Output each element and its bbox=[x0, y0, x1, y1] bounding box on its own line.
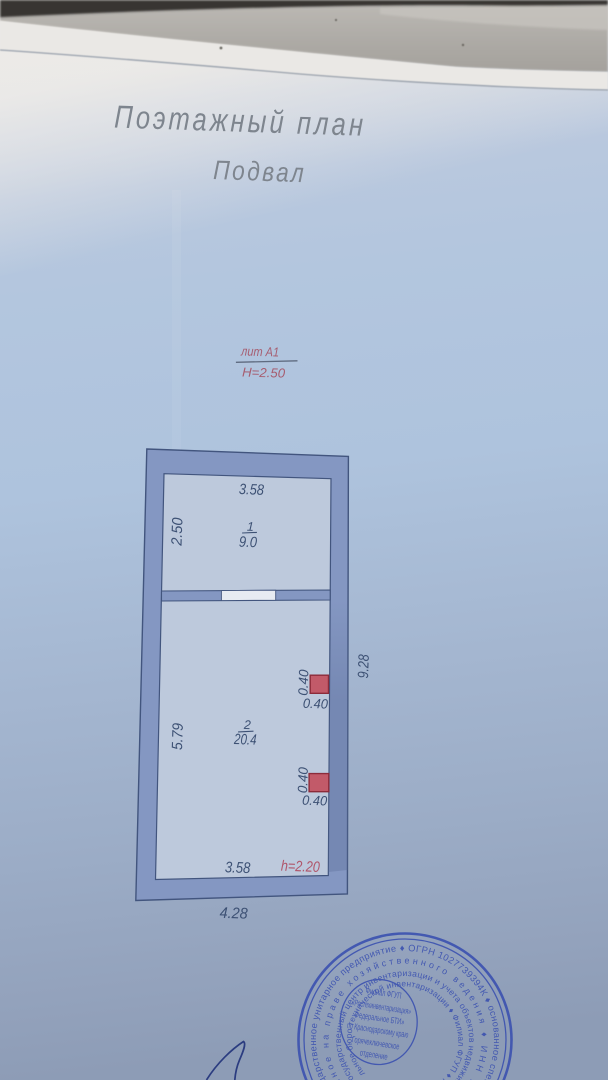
svg-text:4.28: 4.28 bbox=[219, 905, 248, 923]
svg-text:2.50: 2.50 bbox=[168, 517, 186, 547]
svg-text:0.40: 0.40 bbox=[303, 696, 329, 712]
svg-text:9.28: 9.28 bbox=[355, 654, 373, 679]
svg-text:Н=2.50: Н=2.50 bbox=[242, 365, 286, 381]
svg-text:Подвал: Подвал bbox=[213, 155, 307, 188]
svg-text:20.4: 20.4 bbox=[233, 731, 257, 749]
svg-text:0.40: 0.40 bbox=[296, 669, 312, 696]
svg-text:2: 2 bbox=[243, 718, 251, 732]
svg-text:h=2.20: h=2.20 bbox=[281, 858, 321, 876]
svg-text:9.0: 9.0 bbox=[239, 534, 258, 552]
svg-text:лит А1: лит А1 bbox=[240, 343, 279, 359]
svg-text:3.58: 3.58 bbox=[239, 481, 265, 499]
svg-text:1: 1 bbox=[247, 520, 254, 534]
svg-text:5.79: 5.79 bbox=[169, 722, 187, 750]
svg-text:0.40: 0.40 bbox=[295, 766, 311, 793]
svg-text:3.58: 3.58 bbox=[225, 859, 251, 877]
svg-text:0.40: 0.40 bbox=[302, 793, 328, 809]
